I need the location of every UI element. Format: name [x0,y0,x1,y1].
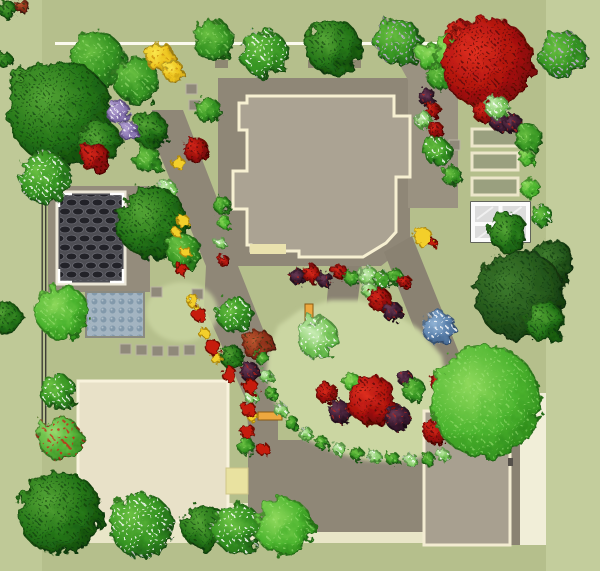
flower-red [240,424,254,438]
tree-g2 [255,351,269,365]
tree-yellow [162,60,184,82]
stepping-stone [136,345,147,355]
tree-reds [183,137,209,163]
tree-mint [485,95,509,119]
tree-mint [297,317,339,359]
tree-purple [119,121,139,141]
tree-reds [218,255,230,267]
house-terrace-mat [250,244,286,254]
tree-mint [215,237,227,249]
flower-red [192,307,206,321]
tree-g2 [402,378,426,402]
pond [86,292,144,337]
flower-red [257,443,269,455]
tree-reds [428,122,444,138]
flower-red [175,263,187,275]
garden-bed [472,153,518,170]
tree-g2 [315,436,329,450]
tree-mint [259,369,273,383]
lawn-gate [226,468,248,494]
stepping-stone [168,346,179,356]
tree-g2 [195,97,221,123]
tree-g1 [305,19,361,75]
tree-spd [385,405,411,431]
garden-plan-canvas [0,0,600,571]
tree-reds [398,275,412,289]
tree-g1 [525,302,565,342]
tree-sp [424,138,452,166]
tree-spd [240,362,260,382]
flower-red [429,239,437,247]
tree-g3 [519,150,535,166]
tree-sp [217,297,253,333]
tree-mint [332,442,346,456]
tree-g2 [442,166,462,186]
tree-blue [422,311,456,345]
tree-g3 [255,498,313,556]
flower-yellow [172,157,184,169]
tree-g2 [213,196,231,214]
tree-mint [274,403,288,417]
tree-mint [299,427,313,441]
flower-yellow [177,215,189,227]
flower-red [222,367,236,381]
tree-mint [436,448,450,462]
stepping-stone [151,287,162,297]
house [233,96,410,257]
flower-yellow [181,247,191,257]
tree-reds [316,382,338,404]
flower-red [241,402,255,416]
tree-g2 [134,146,162,174]
tree-g1 [488,212,528,252]
flower-yellow [199,328,209,338]
tree-g3 [35,285,89,339]
tree-g2 [350,447,364,461]
tree-sp [40,374,76,410]
tree-reds [80,143,110,173]
tree-mint [404,453,418,467]
garden-bed [472,178,518,195]
stepping-stone [152,346,163,356]
tree-g1 [18,471,102,555]
stepping-stone [186,84,197,94]
flower-yellow [172,228,180,236]
tree-mint [368,450,382,464]
tree-sp [531,205,553,227]
fence-post [215,60,228,68]
tree-g3 [430,346,542,458]
tree-sp [109,493,173,557]
tree-g3 [520,178,540,198]
tree-red [442,18,534,110]
tree-g2 [386,452,400,466]
tree-spd [317,272,333,288]
stepping-stone [184,345,195,355]
tree-spp [374,18,422,66]
tree-g2 [515,125,543,153]
tree-g2 [192,19,234,61]
tree-g2 [237,437,255,455]
tree-sp [212,503,262,553]
tree-sp [19,152,71,204]
house-footprint [233,96,410,257]
garden-plan [0,0,600,571]
tree-spr [38,416,82,460]
tree-g2 [285,416,299,430]
tree-sp [241,30,289,78]
tree-spd [383,302,403,322]
tree-g2 [421,452,435,466]
tree-spp [539,31,587,79]
tree-g2 [344,270,360,286]
tree-g3 [217,215,231,229]
tree-g1 [220,345,244,369]
tree-purple [106,100,130,124]
flower-yellow [187,295,199,307]
garage-door-handle [508,458,513,466]
flower-red [244,380,258,394]
flower-red [206,340,220,354]
tree-g2 [265,387,279,401]
stepping-stone [120,344,131,354]
pavilion-tiles [60,195,122,281]
